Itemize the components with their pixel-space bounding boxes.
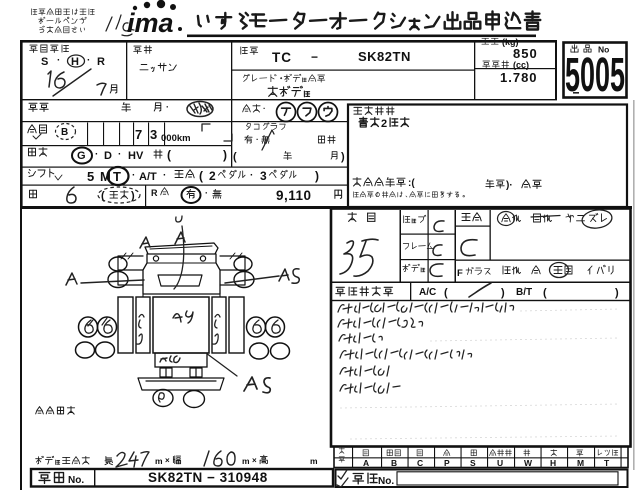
- svg-text:(: (: [543, 287, 547, 299]
- svg-text:·: ·: [132, 170, 135, 181]
- svg-text:(: (: [167, 148, 171, 162]
- svg-text:·: ·: [166, 102, 169, 112]
- svg-text:C: C: [417, 458, 423, 468]
- svg-text:S: S: [41, 56, 48, 68]
- svg-text:SK82TN − 310948: SK82TN − 310948: [148, 470, 268, 485]
- svg-text:(: (: [444, 287, 448, 299]
- svg-text:(: (: [233, 151, 237, 163]
- svg-text:850: 850: [513, 46, 538, 61]
- svg-text:T: T: [113, 169, 121, 184]
- svg-text:m: m: [155, 456, 163, 466]
- svg-text:ima: ima: [127, 8, 174, 38]
- svg-text:3: 3: [260, 169, 267, 183]
- svg-text:·: ·: [95, 149, 98, 160]
- svg-text:A/T: A/T: [139, 171, 157, 183]
- svg-text:7: 7: [135, 127, 142, 142]
- svg-text:R: R: [151, 188, 158, 198]
- svg-text:P: P: [444, 458, 450, 468]
- svg-text:·: ·: [205, 188, 208, 198]
- svg-text:A/C: A/C: [419, 287, 436, 298]
- svg-text:H: H: [550, 458, 556, 468]
- svg-text:U: U: [497, 458, 503, 468]
- svg-text:1.780: 1.780: [500, 70, 538, 85]
- svg-text:−: −: [311, 50, 318, 64]
- svg-text:000km: 000km: [161, 133, 191, 144]
- svg-text:3: 3: [150, 127, 157, 142]
- svg-text:HV: HV: [128, 150, 144, 162]
- svg-text:×: ×: [252, 456, 257, 465]
- svg-text:T: T: [604, 458, 610, 468]
- svg-text:2: 2: [209, 169, 216, 183]
- svg-text:9,110: 9,110: [276, 188, 312, 203]
- svg-text:·: ·: [256, 135, 259, 144]
- svg-text::(: :(: [408, 178, 415, 189]
- svg-text:5: 5: [87, 169, 94, 184]
- svg-text:B: B: [391, 458, 397, 468]
- svg-text:No.: No.: [378, 476, 394, 487]
- svg-text:A: A: [363, 458, 369, 468]
- svg-text:·: ·: [57, 55, 60, 66]
- svg-text:·: ·: [87, 55, 90, 66]
- svg-text:(cc): (cc): [513, 60, 529, 70]
- svg-text:G: G: [77, 150, 86, 162]
- svg-text:TC: TC: [272, 50, 292, 65]
- svg-text:): ): [615, 287, 619, 299]
- svg-text:S: S: [470, 458, 476, 468]
- svg-text:B/T: B/T: [516, 287, 532, 298]
- svg-text:·: ·: [263, 104, 266, 113]
- svg-text:No.: No.: [68, 475, 84, 486]
- svg-text:5005: 5005: [565, 49, 625, 102]
- svg-text:): ): [223, 148, 227, 162]
- svg-text:·: ·: [118, 149, 121, 160]
- svg-text:B: B: [61, 127, 68, 138]
- svg-text:F: F: [457, 268, 463, 279]
- svg-text:SK82TN: SK82TN: [358, 49, 411, 64]
- svg-text:·: ·: [250, 170, 253, 181]
- svg-text:W: W: [524, 458, 533, 468]
- svg-text:D: D: [104, 150, 112, 162]
- svg-text:R: R: [97, 56, 105, 68]
- svg-text:): ): [501, 287, 505, 299]
- svg-text:M: M: [577, 458, 584, 468]
- svg-text:)·: )·: [506, 180, 513, 191]
- svg-text:): ): [341, 151, 345, 163]
- svg-text:·: ·: [163, 170, 166, 181]
- svg-text:m: m: [310, 456, 318, 466]
- svg-text:): ): [315, 169, 319, 183]
- svg-text:m: m: [242, 456, 250, 466]
- svg-text:(: (: [199, 169, 203, 183]
- svg-text:2: 2: [381, 118, 387, 130]
- svg-text:×: ×: [165, 456, 170, 465]
